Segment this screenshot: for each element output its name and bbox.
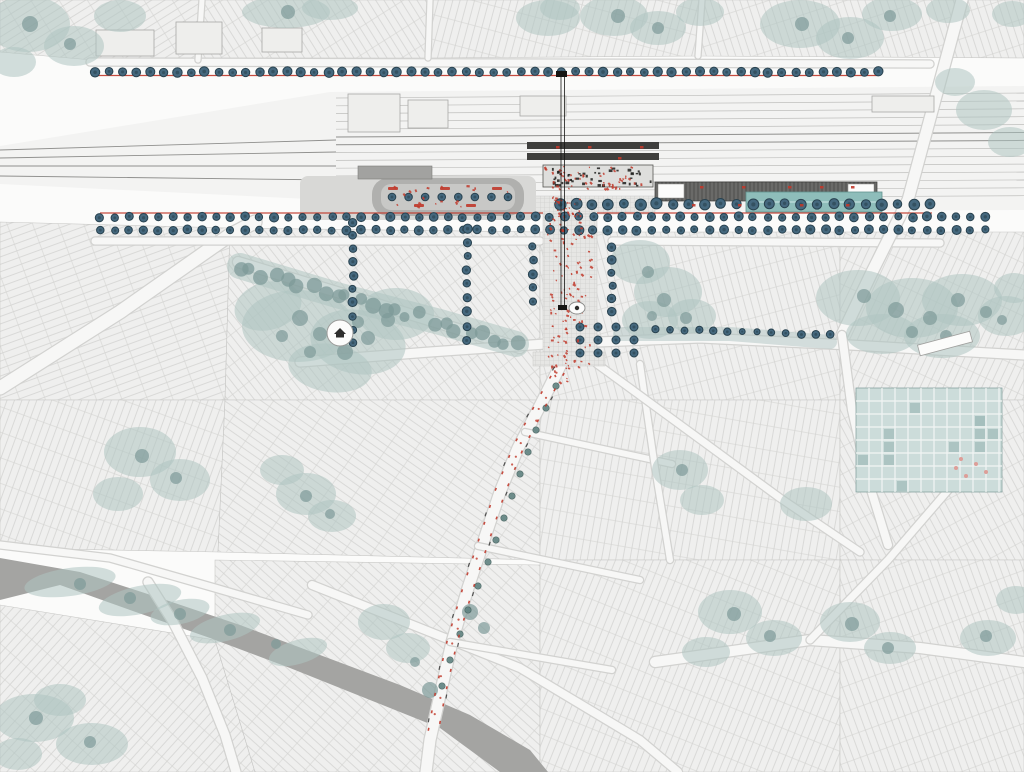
plaza-monument-landmark: [569, 302, 585, 314]
bandstand-landmark: [327, 320, 353, 346]
masterplan-map: [0, 0, 1024, 772]
formal-garden: [856, 388, 1002, 492]
site-plan-drawing: [0, 0, 1024, 772]
